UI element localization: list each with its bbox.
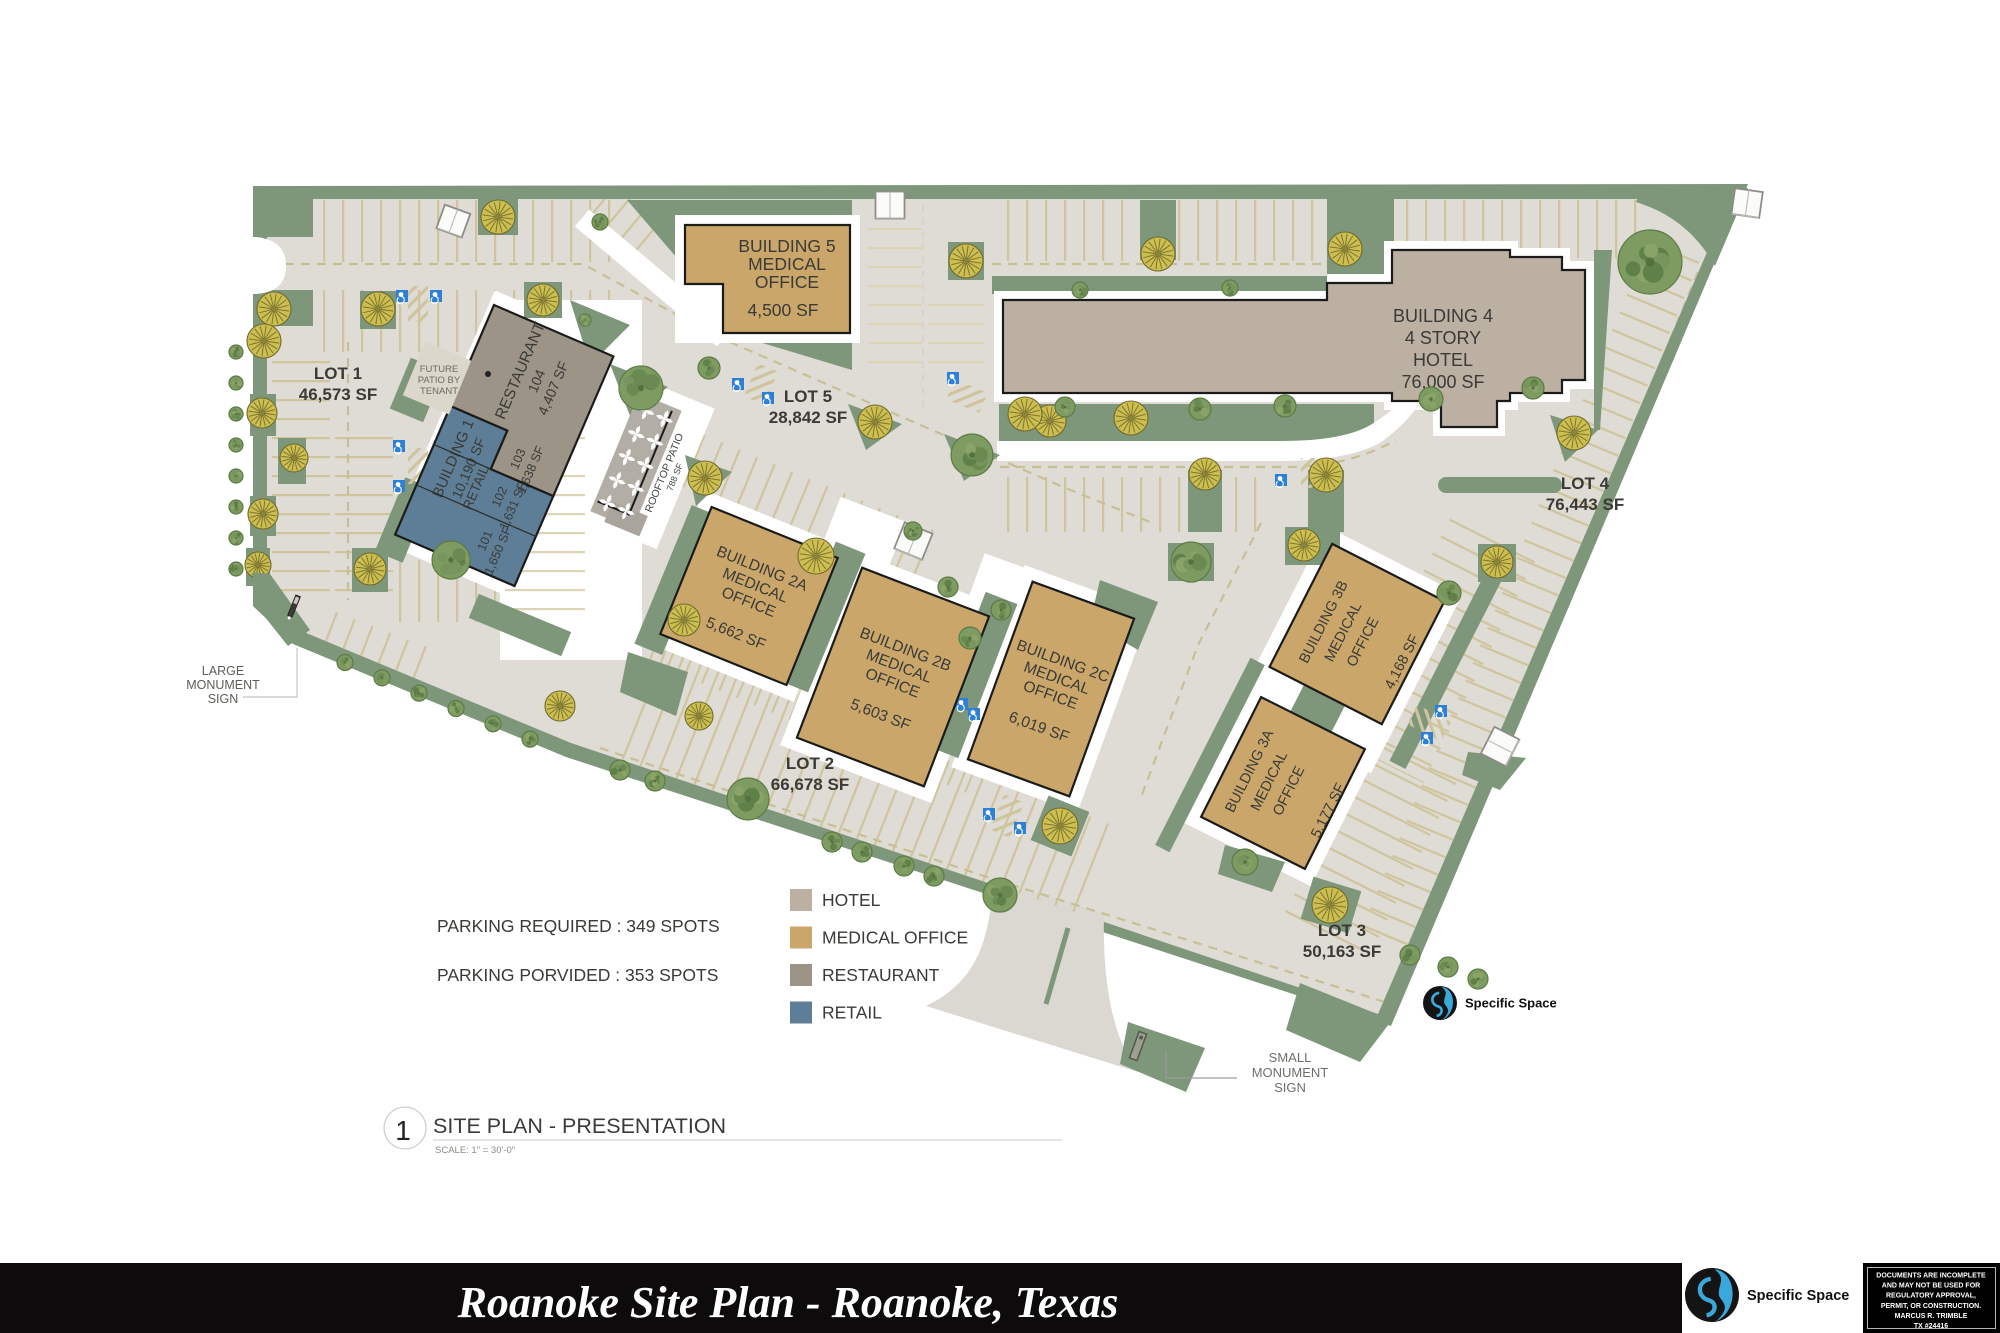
svg-text:TENANT: TENANT [420,386,458,397]
svg-text:50,163 SF: 50,163 SF [1303,942,1381,961]
svg-text:LOT 1: LOT 1 [314,364,362,383]
svg-text:OFFICE: OFFICE [755,272,819,292]
svg-text:Specific Space: Specific Space [1465,996,1557,1011]
svg-text:76,000 SF: 76,000 SF [1401,372,1484,392]
svg-text:28,842 SF: 28,842 SF [769,408,847,427]
svg-text:LOT 2: LOT 2 [786,754,834,773]
svg-text:MARCUS R. TRIMBLE: MARCUS R. TRIMBLE [1895,1313,1968,1320]
svg-text:Specific Space: Specific Space [1747,1288,1849,1304]
svg-text:PATIO BY: PATIO BY [418,375,461,386]
svg-text:LOT 4: LOT 4 [1561,474,1610,493]
svg-text:76,443 SF: 76,443 SF [1546,495,1624,514]
svg-text:PARKING PORVIDED : 353 SPOTS: PARKING PORVIDED : 353 SPOTS [437,965,718,985]
svg-text:4 STORY: 4 STORY [1405,328,1481,348]
svg-text:1: 1 [395,1115,411,1146]
svg-text:REGULATORY APPROVAL,: REGULATORY APPROVAL, [1886,1293,1976,1300]
svg-text:SIGN: SIGN [208,692,239,706]
svg-text:LOT 5: LOT 5 [784,387,832,406]
svg-text:4,500 SF: 4,500 SF [747,300,818,320]
svg-text:HOTEL: HOTEL [1413,350,1473,370]
svg-text:PARKING REQUIRED : 349 SPOTS: PARKING REQUIRED : 349 SPOTS [437,916,720,936]
svg-text:46,573 SF: 46,573 SF [299,385,377,404]
svg-text:66,678 SF: 66,678 SF [771,775,849,794]
svg-text:SITE PLAN - PRESENTATION: SITE PLAN - PRESENTATION [433,1114,726,1138]
svg-text:TX #24416: TX #24416 [1914,1323,1948,1330]
svg-text:SCALE: 1" = 30'-0": SCALE: 1" = 30'-0" [435,1145,515,1156]
svg-text:BUILDING 5: BUILDING 5 [738,236,835,256]
svg-text:DOCUMENTS ARE INCOMPLETE: DOCUMENTS ARE INCOMPLETE [1876,1273,1986,1280]
svg-text:HOTEL: HOTEL [822,890,881,910]
svg-text:SIGN: SIGN [1274,1080,1306,1095]
svg-text:PERMIT, OR CONSTRUCTION.: PERMIT, OR CONSTRUCTION. [1881,1303,1981,1310]
svg-text:RETAIL: RETAIL [822,1003,882,1023]
svg-text:MEDICAL: MEDICAL [748,254,826,274]
svg-text:RESTAURANT: RESTAURANT [822,965,940,985]
svg-text:MONUMENT: MONUMENT [1252,1065,1329,1080]
svg-text:MONUMENT: MONUMENT [186,678,260,692]
svg-text:LOT 3: LOT 3 [1318,921,1366,940]
svg-text:BUILDING 4: BUILDING 4 [1393,306,1493,326]
svg-text:MEDICAL OFFICE: MEDICAL OFFICE [822,928,968,948]
svg-text:Roanoke Site Plan - Roanoke, T: Roanoke Site Plan - Roanoke, Texas [457,1278,1119,1327]
svg-text:AND MAY NOT BE USED FOR: AND MAY NOT BE USED FOR [1882,1283,1980,1290]
svg-text:FUTURE: FUTURE [420,364,459,375]
svg-text:LARGE: LARGE [202,664,244,678]
svg-text:SMALL: SMALL [1269,1050,1312,1065]
